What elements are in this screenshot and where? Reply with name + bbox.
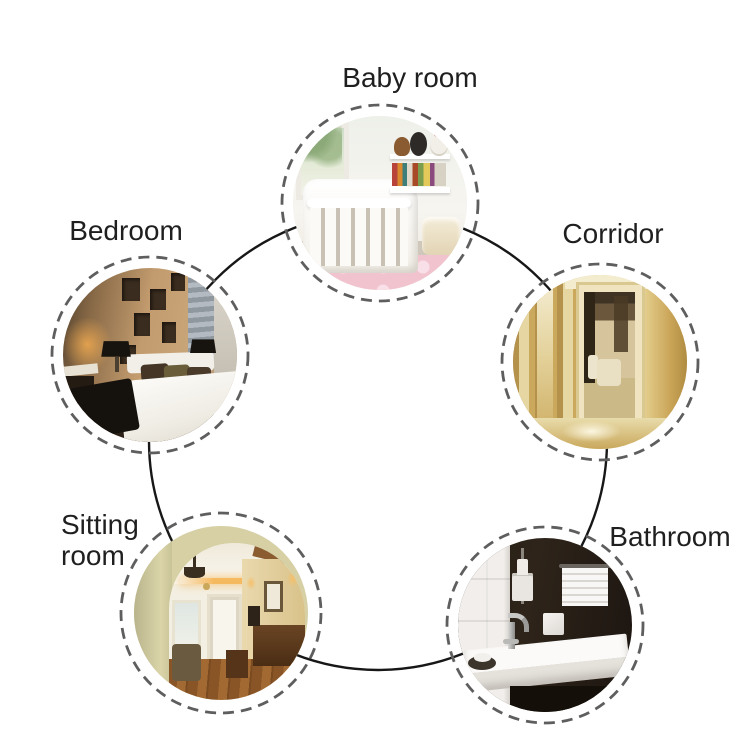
wall-sconce: [287, 570, 299, 587]
sitting-room-label: Sitting room: [61, 509, 165, 571]
corridor-label: Corridor: [562, 218, 663, 249]
bedroom-photo: [63, 268, 237, 442]
wood-table: [226, 650, 248, 678]
corridor-photo: [513, 275, 687, 449]
toy-basket: [422, 217, 460, 255]
sitting-window: [172, 600, 202, 647]
soap-bar: [474, 653, 491, 662]
shelf-books: [392, 163, 446, 186]
wall-recess: [171, 273, 185, 290]
wall-recess: [162, 322, 176, 343]
white-bed: [119, 371, 237, 442]
shower-caddy: [512, 573, 533, 601]
faucet-handle: [503, 639, 519, 644]
bathroom-label: Bathroom: [609, 521, 730, 552]
shampoo-bottle: [517, 559, 527, 575]
wall-sconce: [246, 576, 256, 590]
plush-toy-hat: [434, 130, 444, 137]
sofa: [172, 644, 202, 682]
wall-recess: [134, 313, 150, 336]
baby-room-label: Baby room: [342, 62, 477, 93]
arch-opening: [169, 543, 305, 700]
bedroom-window: [214, 268, 237, 383]
baby-room-photo: [293, 116, 467, 290]
chandelier: [184, 567, 206, 578]
red-flowers: [137, 676, 161, 695]
picture-frame: [264, 581, 283, 612]
dark-object: [248, 606, 260, 626]
plush-toy-brown: [394, 137, 410, 156]
black-bench: [69, 378, 140, 440]
floor-reflection: [562, 421, 621, 442]
wall-recess: [150, 289, 166, 310]
room-sofa: [597, 359, 621, 387]
crib-rail: [307, 198, 411, 208]
wall-clock: [203, 583, 210, 591]
faucet-body: [508, 622, 515, 650]
wall-dispenser: [543, 613, 564, 636]
plush-toy-dark: [410, 132, 427, 156]
plush-toy-white: [430, 135, 447, 156]
crib-slats: [310, 208, 407, 265]
shelf-board-bottom: [390, 187, 449, 192]
white-towel: [562, 568, 607, 606]
dark-curtain-right: [614, 296, 628, 352]
window-foliage: [293, 119, 342, 168]
wood-cabinet: [253, 625, 305, 666]
room-showcase-diagram: Baby room Bedroom Corridor Sitting room …: [0, 0, 750, 750]
bedroom-label: Bedroom: [69, 215, 183, 246]
basin-shadow: [510, 686, 632, 712]
wall-recess: [122, 278, 139, 301]
lamp-shade-left: [101, 341, 131, 357]
lamp-shade-right: [190, 339, 216, 353]
bathroom-photo: [458, 538, 632, 712]
lamp-stem: [115, 357, 118, 373]
